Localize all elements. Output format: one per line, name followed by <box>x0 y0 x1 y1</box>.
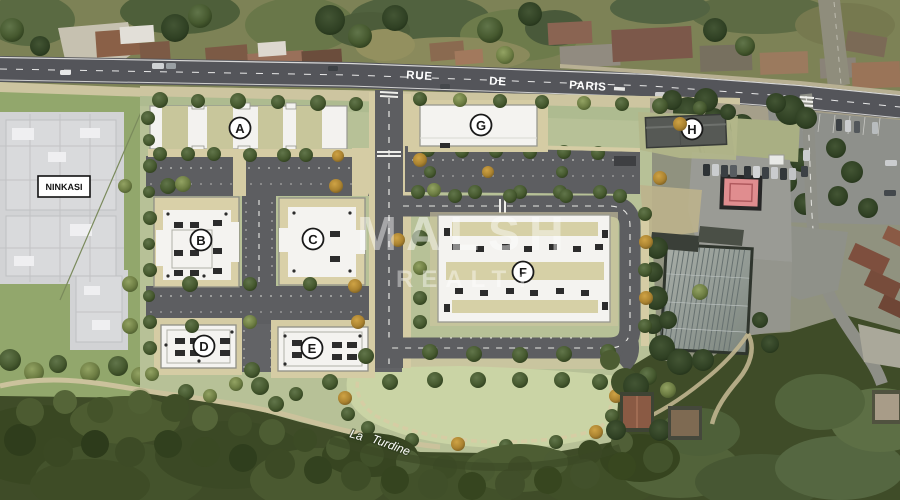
svg-text:C: C <box>308 232 318 247</box>
svg-text:DE: DE <box>489 76 507 89</box>
svg-text:NINKASI: NINKASI <box>45 182 82 192</box>
svg-text:RUE: RUE <box>406 70 433 84</box>
svg-text:G: G <box>476 118 486 133</box>
svg-text:REALTY: REALTY <box>396 266 538 293</box>
svg-text:A: A <box>235 121 245 136</box>
svg-text:D: D <box>199 339 208 354</box>
svg-text:E: E <box>308 341 317 356</box>
svg-text:B: B <box>196 233 205 248</box>
svg-text:PARIS: PARIS <box>569 80 607 94</box>
svg-text:H: H <box>687 122 696 137</box>
svg-text:MALSH: MALSH <box>357 208 573 261</box>
